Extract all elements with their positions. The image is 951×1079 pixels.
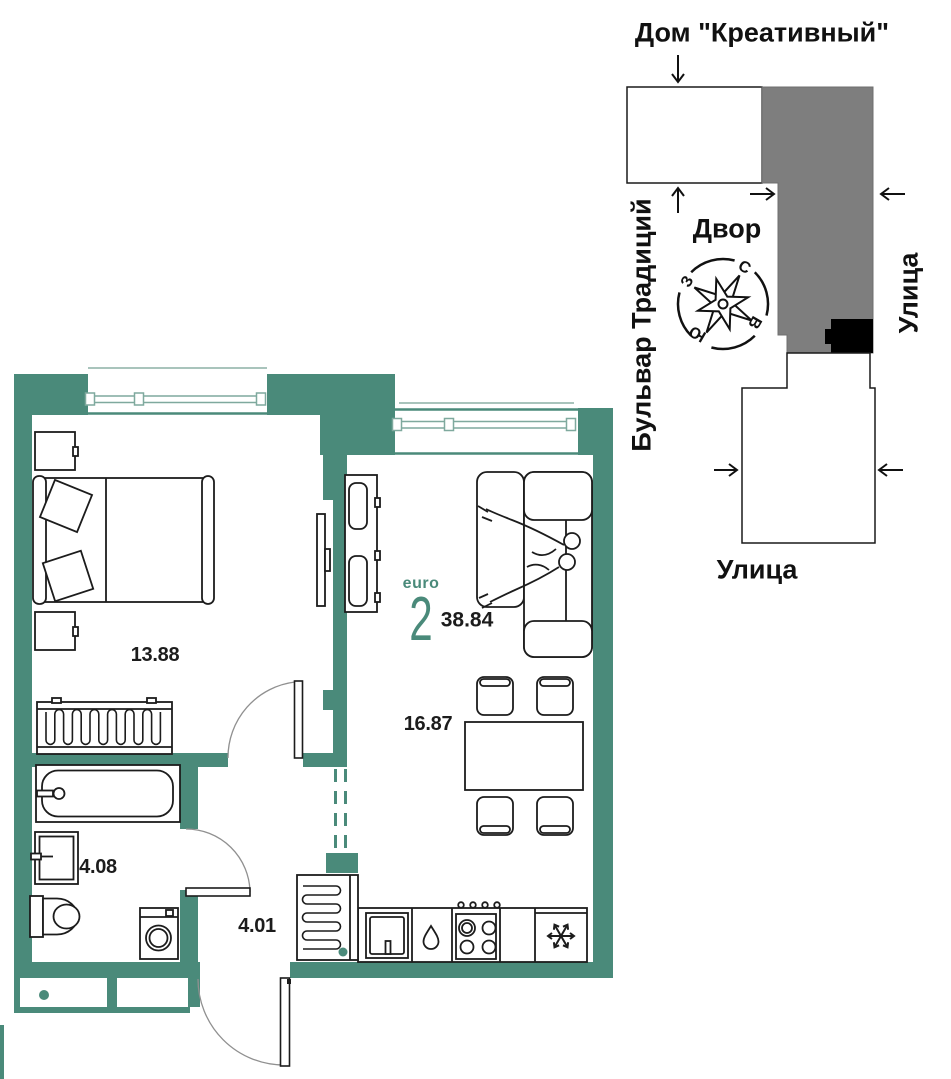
- tv-cabinet: [345, 475, 380, 612]
- minimap-street-left-label: Бульвар Традиций: [629, 198, 656, 451]
- bedroom-area-label: 13.88: [131, 645, 180, 665]
- double-bed: [33, 476, 214, 604]
- shaft-dot: [39, 990, 49, 1000]
- dining-table: [465, 722, 583, 790]
- minimap-yard-label: Двор: [693, 216, 761, 243]
- kitchen-opening-dashed: [336, 769, 346, 851]
- hallway-area-label: 4.01: [238, 916, 276, 936]
- apartment-plan: [0, 368, 613, 1079]
- location-minimap: [627, 55, 905, 543]
- bedroom-radiator: [37, 698, 172, 754]
- bathtub: [36, 765, 180, 822]
- floor-plan-svg: [0, 0, 951, 1079]
- rooms-count-label: 2: [409, 589, 432, 651]
- wall-tv: [317, 514, 330, 606]
- total-area-label: 38.84: [441, 610, 494, 631]
- arrow-left-icon: [879, 464, 903, 476]
- minimap-street-right-label: Улица: [896, 253, 923, 334]
- chair: [477, 677, 513, 715]
- entry-door: [198, 978, 291, 1066]
- apartment-location-marker: [825, 319, 873, 353]
- chair: [537, 797, 573, 835]
- arrow-down-icon: [672, 55, 684, 82]
- arrow-right-icon: [750, 188, 774, 200]
- current-building-shape: [762, 87, 873, 353]
- minimap-street-bottom-label: Улица: [717, 557, 798, 584]
- washing-machine: [140, 908, 178, 959]
- floor-plan-page: Дом "Креативный" Двор Бульвар Традиций У…: [0, 0, 951, 1079]
- kitchen-radiator: [297, 875, 358, 960]
- arrow-up-icon: [672, 188, 684, 213]
- living-room-window: [389, 403, 584, 454]
- kitchen-counter: [358, 902, 587, 962]
- minimap-building-label: Дом "Креативный": [635, 20, 889, 47]
- living-room-furniture: [345, 472, 592, 835]
- bedroom-door: [228, 681, 303, 758]
- bedroom-furniture: [33, 432, 330, 754]
- bathroom-sink: [31, 832, 78, 884]
- bedroom-window: [82, 368, 272, 414]
- chair: [477, 797, 513, 835]
- kitchen-sink: [366, 913, 408, 958]
- nightstand: [35, 612, 75, 650]
- dining-set: [465, 677, 583, 835]
- kitchen-area-label: 16.87: [404, 714, 453, 734]
- lower-building-shape: [742, 353, 875, 543]
- nightstand: [35, 432, 75, 470]
- chair: [537, 677, 573, 715]
- neighbor-building-shape: [627, 87, 762, 183]
- bathroom-door: [186, 829, 250, 896]
- bathroom-area-label: 4.08: [79, 857, 117, 877]
- toilet: [30, 896, 80, 937]
- arrow-right-icon: [714, 464, 737, 476]
- arrow-left-icon: [881, 188, 905, 200]
